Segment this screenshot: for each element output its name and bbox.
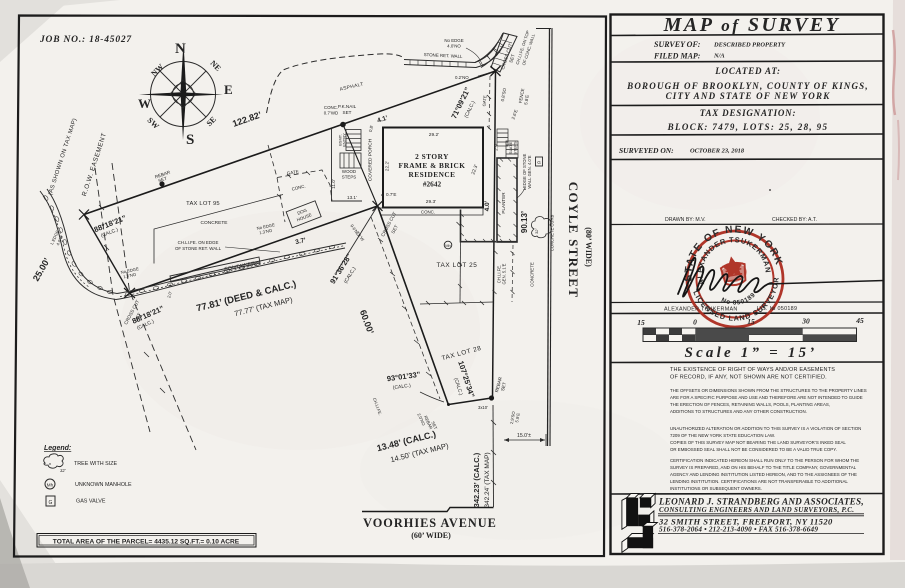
svg-text:TREE WITH SIZE: TREE WITH SIZE [74, 461, 118, 467]
svg-text:WOOD: WOOD [342, 169, 356, 174]
svg-text:THE ERECTION OF FENCES, RE: THE ERECTION OF FENCES, RETAINING WALLS,… [670, 402, 830, 407]
svg-text:7209 OF THE NEW YORK STAT: 7209 OF THE NEW YORK STATE EDUCATION LAW… [670, 433, 775, 438]
svg-text:TAX LOT 25: TAX LOT 25 [437, 262, 478, 269]
svg-text:29.2’: 29.2’ [429, 132, 439, 138]
svg-text:TAX LOT 95: TAX LOT 95 [186, 201, 220, 207]
svg-text:WALL GEN. 4.0’E: WALL GEN. 4.0’E [527, 155, 532, 188]
svg-text:E: E [224, 82, 233, 97]
svg-text:516-378-2064 • 212-213-4090: 516-378-2064 • 212-213-4090 • FAX 516-37… [659, 526, 818, 534]
svg-text:0.2’NO: 0.2’NO [455, 75, 469, 80]
svg-text:4.0’NO: 4.0’NO [447, 44, 461, 49]
svg-text:DESCRIBED PROPERTY: DESCRIBED PROPERTY [713, 42, 786, 49]
svg-text:RESIDENCE: RESIDENCE [408, 170, 455, 179]
svg-text:3x10’: 3x10’ [478, 405, 488, 410]
svg-text:CERTIFICATION INDICATED HERE: CERTIFICATION INDICATED HEREON SHALL RUN… [670, 458, 859, 463]
svg-text:THE OFFSETS OR DIMENSIONS: THE OFFSETS OR DIMENSIONS SHOWN FROM THE… [670, 388, 867, 393]
svg-text:S: S [186, 132, 194, 148]
svg-text:AGENCY AND LENDING INSTITUT: AGENCY AND LENDING INSTITUTION LISTED HE… [670, 472, 857, 477]
svg-text:DRAWN BY: M.V.: DRAWN BY: M.V. [665, 217, 706, 223]
svg-text:#2642: #2642 [423, 180, 442, 189]
svg-text:15.0’±: 15.0’± [517, 433, 531, 439]
svg-text:CONCRETE: CONCRETE [201, 220, 228, 226]
svg-text:CONCRETE: CONCRETE [530, 262, 535, 287]
svg-text:Mh: Mh [445, 243, 451, 248]
svg-text:22.2’: 22.2’ [385, 161, 391, 171]
svg-text:TOTAL AREA OF THE PARCEL=: TOTAL AREA OF THE PARCEL= 4435.12 SQ.FT.… [53, 539, 240, 546]
svg-text:GEN. 5.1’E: GEN. 5.1’E [502, 263, 507, 284]
svg-text:G: G [537, 160, 541, 165]
svg-text:INSTITUTIONS OR SUBSEQUENT: INSTITUTIONS OR SUBSEQUENT OWNERS. [670, 486, 762, 491]
svg-text:COYLE STREET: COYLE STREET [566, 182, 581, 298]
svg-text:342.24’ (TAX MAP): 342.24’ (TAX MAP) [484, 452, 491, 507]
svg-text:JOB NO.: 18-45027: JOB NO.: 18-45027 [39, 35, 132, 45]
svg-text:BOROUGH OF BROOKLYN, COUNTY OF: BOROUGH OF BROOKLYN, COUNTY OF KINGS, [626, 81, 869, 91]
svg-text:L.S. № 050189: L.S. № 050189 [757, 306, 797, 312]
svg-text:11.0’: 11.0’ [331, 179, 336, 189]
svg-text:SURVEY IS PREPARED, AND ON: SURVEY IS PREPARED, AND ON HIS BEHALF TO… [670, 465, 857, 470]
svg-text:LOCATED AT:: LOCATED AT: [714, 66, 781, 76]
svg-text:0.7’E: 0.7’E [386, 192, 396, 197]
svg-text:COVERED PORCH: COVERED PORCH [368, 138, 374, 181]
svg-text:Mh: Mh [47, 483, 54, 488]
svg-text:32’: 32’ [60, 468, 66, 473]
svg-text:OR EMBOSSED SEAL SHALL NOT: OR EMBOSSED SEAL SHALL NOT BE CONSIDERED… [670, 447, 837, 452]
svg-text:SURVEYED ON:: SURVEYED ON: [619, 146, 674, 155]
svg-text:2.9’: 2.9’ [494, 143, 500, 151]
svg-text:N/A: N/A [713, 53, 725, 60]
svg-text:LENDING INSTITUTION. CERTIFI: LENDING INSTITUTION. CERTIFICATIONS ARE … [670, 479, 848, 484]
svg-text:PLANTER: PLANTER [501, 192, 506, 214]
svg-text:FILED MAP:: FILED MAP: [653, 52, 701, 61]
svg-text:OF RECORD, IF ANY, NOT SH: OF RECORD, IF ANY, NOT SHOWN ARE NOT CER… [670, 375, 827, 381]
svg-text:ARE FOR A SPECIFIC PURPOSE: ARE FOR A SPECIFIC PURPOSE AND USE AND T… [670, 395, 863, 400]
svg-text:ENTRY: ENTRY [342, 133, 347, 147]
svg-text:No EDGE: No EDGE [444, 38, 463, 43]
svg-text:GATE: GATE [482, 95, 488, 107]
svg-text:OF STONE RET. WALL: OF STONE RET. WALL [175, 246, 222, 251]
svg-text:ADDITIONS TO STRUCTURES AND: ADDITIONS TO STRUCTURES AND ANY OTHER CO… [670, 409, 807, 414]
svg-text:UNAUTHORIZED ALTERATION OR: UNAUTHORIZED ALTERATION OR ADDITION TO T… [670, 426, 861, 431]
svg-text:ALEXANDER TSUKERMAN: ALEXANDER TSUKERMAN [664, 307, 738, 313]
svg-text:BLOCK: 7479, LOTS: 25, 28, 95: BLOCK: 7479, LOTS: 25, 28, 95 [667, 122, 829, 132]
svg-text:15: 15 [747, 317, 755, 326]
svg-text:Legend:: Legend: [44, 445, 71, 452]
svg-text:N: N [175, 41, 186, 57]
svg-text:CH.LI.FE. ON EDGE: CH.LI.FE. ON EDGE [178, 240, 219, 245]
svg-text:CONC.: CONC. [324, 105, 338, 110]
svg-text:THE EXISTENCE OF RIGHT OF: THE EXISTENCE OF RIGHT OF WAYS AND/OR EA… [670, 367, 835, 373]
svg-text:13.1’: 13.1’ [347, 195, 357, 200]
svg-text:342.23’ (CALC.): 342.23’ (CALC.) [472, 452, 481, 507]
svg-text:LEONARD J. STRANDBERG AND: LEONARD J. STRANDBERG AND ASSOCIATES, [658, 497, 864, 507]
svg-text:UNKNOWN MANHOLE: UNKNOWN MANHOLE [75, 482, 132, 488]
svg-text:GAS VALVE: GAS VALVE [76, 499, 106, 505]
svg-text:TAX DESIGNATION:: TAX DESIGNATION: [700, 108, 797, 118]
svg-text:STEPS: STEPS [513, 141, 518, 154]
svg-text:(80’ WIDE): (80’ WIDE) [584, 227, 593, 267]
svg-text:MAP of SURVEY: MAP of SURVEY [663, 14, 841, 36]
svg-text:CHECKED BY: A.T.: CHECKED BY: A.T. [772, 217, 817, 223]
svg-text:FRAME & BRICK: FRAME & BRICK [399, 161, 466, 170]
svg-text:CONC.: CONC. [421, 210, 435, 215]
svg-text:2 STORY: 2 STORY [415, 152, 449, 161]
svg-text:OCTOBER 23, 2018: OCTOBER 23, 2018 [690, 148, 745, 155]
svg-text:CONSULTING ENGINEERS AND: CONSULTING ENGINEERS AND LAND SURVEYORS,… [659, 506, 854, 514]
svg-text:VOORHIES AVENUE: VOORHIES AVENUE [363, 516, 497, 530]
svg-text:90.13’: 90.13’ [520, 211, 529, 233]
svg-text:SET: SET [343, 110, 352, 115]
svg-text:32’: 32’ [534, 229, 539, 234]
svg-text:4.0’: 4.0’ [484, 200, 491, 211]
svg-text:15: 15 [637, 318, 645, 327]
svg-text:G: G [49, 500, 53, 506]
svg-text:W: W [138, 96, 151, 111]
svg-text:SURVEY OF:: SURVEY OF: [654, 40, 701, 49]
svg-text:COPIES OF THIS SURVEY MAP: COPIES OF THIS SURVEY MAP NOT BEARING TH… [670, 440, 846, 445]
svg-text:STEPS: STEPS [342, 175, 356, 180]
svg-text:0: 0 [693, 318, 697, 327]
svg-text:Scale 1” = 15’: Scale 1” = 15’ [685, 345, 818, 361]
svg-text:29.3’: 29.3’ [426, 199, 436, 205]
svg-text:(60’ WIDE): (60’ WIDE) [411, 531, 451, 540]
svg-text:0.7’WD: 0.7’WD [324, 111, 338, 116]
svg-text:30: 30 [801, 317, 810, 326]
svg-text:45: 45 [855, 316, 864, 325]
svg-text:CITY AND STATE OF NEW YORK: CITY AND STATE OF NEW YORK [666, 91, 831, 101]
svg-text:P.K.NAIL: P.K.NAIL [338, 104, 357, 109]
